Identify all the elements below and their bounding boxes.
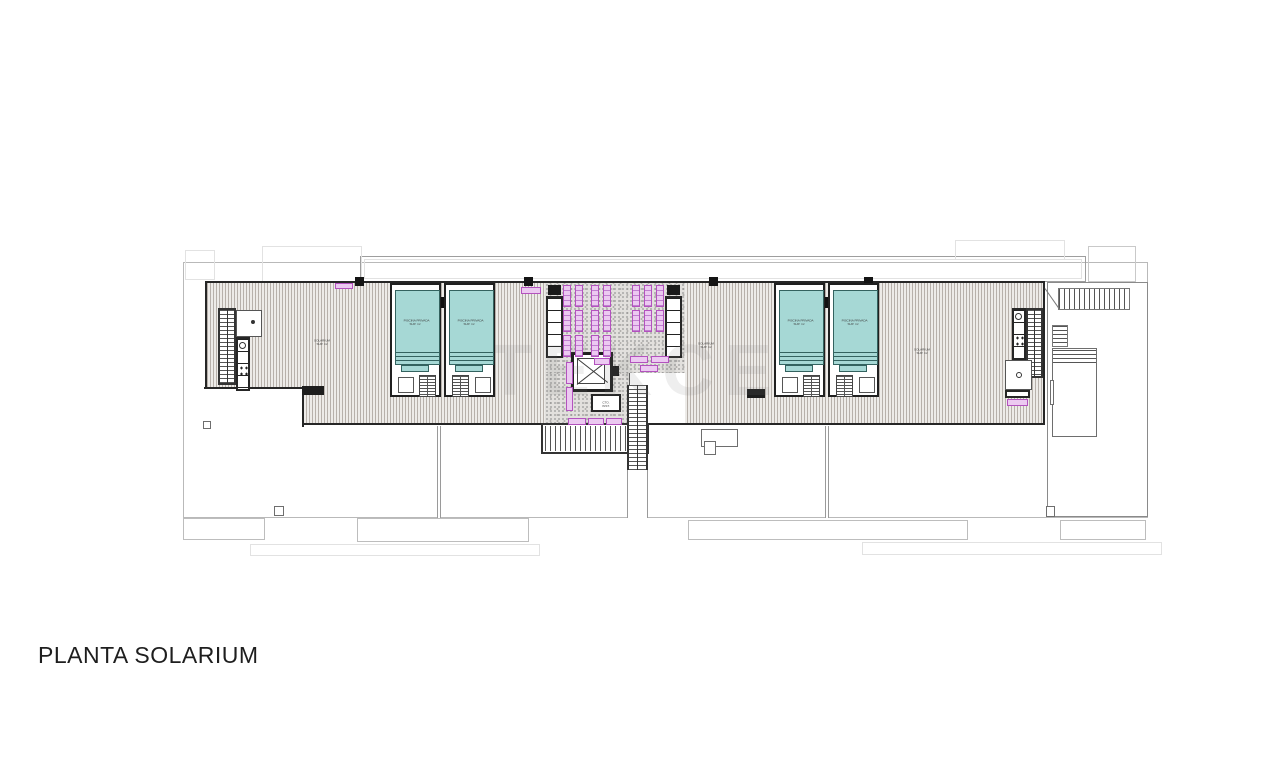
terrace-fixture-cap-left: [548, 285, 561, 295]
solarium-area-label: SOLARIUMSUP. m²: [311, 339, 334, 346]
sun-lounger-symbol: [656, 310, 664, 332]
planter-bench-symbol: [606, 418, 622, 425]
sun-lounger-symbol: [632, 285, 640, 307]
sun-lounger-symbol: [603, 310, 611, 332]
shower-pad-symbol: [475, 377, 491, 393]
pool-ladder-symbol: [452, 375, 469, 397]
sun-lounger-symbol: [575, 285, 583, 307]
balcony-outline-bottom-1: [357, 518, 529, 542]
sun-lounger-symbol: [632, 310, 640, 332]
sink-icon: [239, 342, 246, 349]
planter-bench-symbol: [566, 362, 573, 384]
pool-label: PISCINA PRIVADASUP. m²: [788, 319, 811, 326]
deck-cutout: [204, 387, 304, 427]
private-pool-unit: PISCINA PRIVADASUP. m²: [390, 283, 441, 397]
sun-lounger-symbol: [591, 285, 599, 307]
planter-bench-symbol: [651, 356, 669, 363]
roof-vent-symbol: [203, 421, 211, 429]
right-bench-box: [1005, 390, 1030, 398]
sun-lounger-symbol: [603, 335, 611, 357]
annex-steps: [1052, 325, 1068, 347]
roof-vent-symbol: [1046, 506, 1055, 517]
wall-tick-mark: [355, 277, 364, 286]
planter-bench-symbol: [566, 387, 573, 411]
pool-label: PISCINA PRIVADASUP. m²: [458, 319, 481, 326]
deck-step-bar: [302, 386, 324, 395]
private-pool-unit: PISCINA PRIVADASUP. m²: [828, 283, 879, 397]
pool-label: PISCINA PRIVADASUP. m²: [842, 319, 865, 326]
annex-shaft-top-lines: [1053, 350, 1096, 364]
roof-outline-topright: [955, 240, 1065, 260]
watermark: TEKCE: [488, 330, 782, 412]
pool-step-ledge: [785, 365, 813, 372]
private-pool-unit: PISCINA PRIVADASUP. m²: [444, 283, 495, 397]
roof-outline-topleft: [262, 246, 362, 282]
annex-stair: [1058, 288, 1130, 310]
left-landing: [236, 310, 262, 337]
sun-lounger-symbol: [644, 285, 652, 307]
roof-outline-topright-2: [1088, 246, 1136, 282]
balcony-outline-faint-1: [250, 544, 540, 556]
roof-outline-topleft-2: [185, 250, 215, 280]
right-sink-icon: [1015, 313, 1022, 320]
stove-icon: [238, 364, 248, 376]
roof-divider-line: [437, 426, 441, 518]
plan-title: PLANTA SOLARIUM: [38, 642, 259, 669]
wall-tick-mark: [709, 277, 718, 286]
solarium-area-label: SOLARIUMSUP. m²: [695, 342, 718, 349]
balcony-outline-faint-2: [862, 542, 1162, 555]
roof-vent-symbol: [274, 506, 284, 516]
sun-lounger-symbol: [644, 310, 652, 332]
left-stair-rail: [227, 308, 228, 385]
stair-run-horizontal: [545, 426, 627, 451]
pool-label: PISCINA PRIVADASUP. m²: [404, 319, 427, 326]
pool-ladder-symbol: [803, 375, 820, 397]
sun-lounger-symbol: [575, 335, 583, 357]
stair-corridor: [627, 470, 648, 518]
planter-bench-symbol: [568, 418, 586, 425]
pool-steps: [833, 352, 878, 365]
pool-steps: [449, 352, 494, 365]
sun-lounger-symbol: [563, 335, 571, 357]
private-pool-unit: PISCINA PRIVADASUP. m²: [774, 283, 825, 397]
shower-pad-symbol: [398, 377, 414, 393]
parapet-outline-inner: [364, 259, 1082, 279]
right-stove-icon: [1014, 334, 1024, 346]
pool-ladder-symbol: [836, 375, 853, 397]
wall-tick-mark: [524, 277, 533, 286]
planter-bench-symbol: [521, 287, 541, 294]
right-room-fixture-icon: [1016, 372, 1022, 378]
sun-lounger-symbol: [563, 310, 571, 332]
sun-lounger-symbol: [591, 335, 599, 357]
solarium-area-label: SOLARIUMSUP. m²: [911, 348, 934, 355]
pool-step-ledge: [401, 365, 429, 372]
roof-vent-symbol: [704, 441, 716, 455]
planter-bench-symbol: [594, 358, 610, 365]
right-stair-rail: [1034, 308, 1035, 378]
balcony-outline-bottom-3: [1060, 520, 1146, 540]
sun-lounger-symbol: [656, 285, 664, 307]
door-handle-icon: [251, 320, 255, 324]
shower-pad-symbol: [859, 377, 875, 393]
planter-bench-symbol: [588, 418, 604, 425]
sun-lounger-symbol: [575, 310, 583, 332]
sun-lounger-symbol: [603, 285, 611, 307]
planter-bench-symbol: [1007, 399, 1028, 406]
roof-divider-line: [825, 426, 829, 518]
planter-bench-symbol: [335, 283, 353, 289]
pool-steps: [395, 352, 440, 365]
pool-step-ledge: [455, 365, 483, 372]
pool-steps: [779, 352, 824, 365]
shower-pad-symbol: [782, 377, 798, 393]
solarium-floor-plan: CTO.INST.: [0, 0, 1280, 762]
sun-lounger-symbol: [591, 310, 599, 332]
sun-lounger-symbol: [563, 285, 571, 307]
balcony-outline-bottom-left-edge: [183, 518, 265, 540]
terrace-fixture-cap-right: [667, 285, 680, 295]
floorplan-canvas: CTO.INST.: [0, 0, 1280, 762]
pool-step-ledge: [839, 365, 867, 372]
annex-shaft-handle: [1050, 380, 1054, 405]
planter-bench-symbol: [630, 356, 648, 363]
pool-ladder-symbol: [419, 375, 436, 397]
balcony-outline-bottom-2: [688, 520, 968, 540]
planter-bench-symbol: [640, 365, 658, 372]
